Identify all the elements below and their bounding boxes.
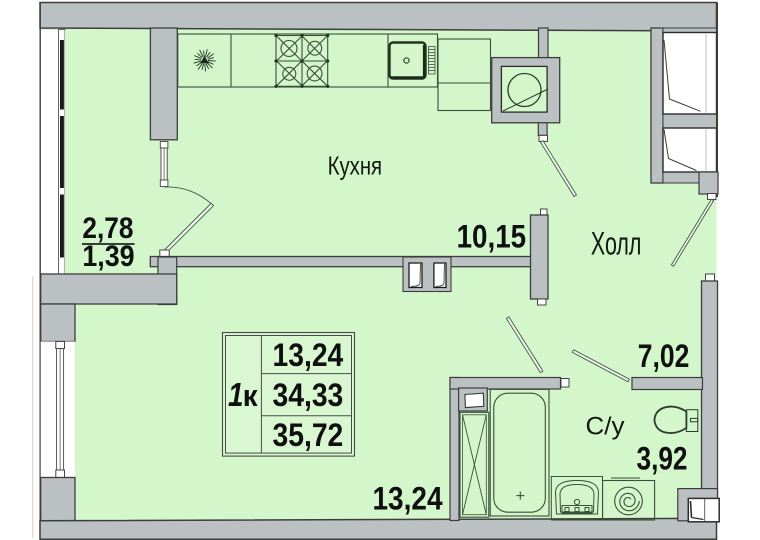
- svg-text:3,92: 3,92: [637, 441, 688, 477]
- svg-text:34,33: 34,33: [273, 377, 344, 413]
- svg-text:7,02: 7,02: [638, 338, 690, 374]
- svg-text:1,39: 1,39: [82, 240, 134, 273]
- svg-text:Холл: Холл: [591, 226, 642, 262]
- svg-text:1: 1: [228, 377, 244, 414]
- svg-text:35,72: 35,72: [273, 417, 344, 453]
- svg-text:С/у: С/у: [586, 412, 626, 440]
- svg-text:13,24: 13,24: [273, 337, 344, 373]
- svg-text:13,24: 13,24: [373, 481, 443, 517]
- svg-text:к: к: [243, 378, 258, 413]
- svg-text:10,15: 10,15: [457, 218, 527, 254]
- svg-text:Кухня: Кухня: [328, 151, 383, 181]
